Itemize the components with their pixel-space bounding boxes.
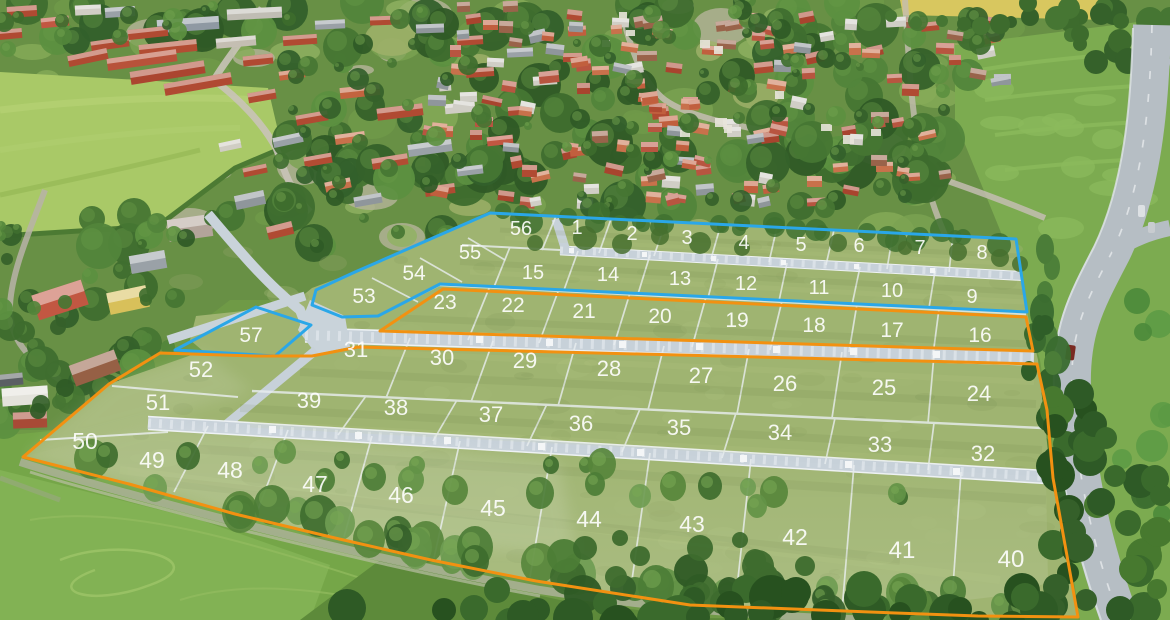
- svg-text:18: 18: [802, 314, 825, 337]
- svg-text:48: 48: [217, 457, 243, 483]
- svg-text:3: 3: [681, 227, 692, 249]
- svg-text:14: 14: [597, 264, 619, 286]
- svg-text:42: 42: [782, 524, 808, 550]
- svg-text:4: 4: [738, 232, 749, 254]
- svg-text:8: 8: [976, 242, 987, 264]
- svg-text:45: 45: [480, 495, 506, 521]
- svg-text:16: 16: [968, 324, 991, 347]
- svg-text:54: 54: [402, 262, 426, 285]
- svg-text:29: 29: [513, 348, 537, 373]
- svg-text:40: 40: [998, 546, 1025, 573]
- svg-text:39: 39: [297, 388, 321, 413]
- svg-text:46: 46: [388, 482, 414, 508]
- svg-text:27: 27: [689, 363, 713, 388]
- svg-text:44: 44: [576, 506, 602, 532]
- svg-text:43: 43: [679, 511, 705, 537]
- svg-text:12: 12: [735, 273, 757, 295]
- svg-text:31: 31: [344, 337, 368, 362]
- svg-text:37: 37: [479, 402, 503, 427]
- svg-text:25: 25: [872, 375, 896, 400]
- svg-text:33: 33: [868, 432, 892, 457]
- svg-text:10: 10: [881, 280, 903, 302]
- svg-text:11: 11: [809, 277, 830, 299]
- svg-text:20: 20: [648, 305, 671, 328]
- svg-text:7: 7: [914, 237, 925, 259]
- svg-text:57: 57: [239, 324, 262, 347]
- svg-text:17: 17: [880, 319, 903, 342]
- svg-text:38: 38: [384, 395, 408, 420]
- svg-text:24: 24: [967, 381, 991, 406]
- svg-text:22: 22: [501, 294, 524, 317]
- svg-text:51: 51: [146, 390, 170, 415]
- svg-text:55: 55: [459, 242, 481, 264]
- svg-text:30: 30: [430, 345, 454, 370]
- svg-text:35: 35: [667, 415, 691, 440]
- svg-text:5: 5: [795, 234, 806, 256]
- svg-text:15: 15: [522, 262, 544, 284]
- svg-text:53: 53: [352, 285, 375, 308]
- svg-text:34: 34: [768, 420, 792, 445]
- svg-text:26: 26: [773, 371, 797, 396]
- svg-text:6: 6: [853, 235, 864, 257]
- svg-text:13: 13: [669, 268, 691, 290]
- svg-text:23: 23: [433, 291, 456, 314]
- svg-text:41: 41: [889, 537, 916, 564]
- svg-text:50: 50: [72, 428, 98, 454]
- svg-text:36: 36: [569, 411, 593, 436]
- svg-text:2: 2: [626, 223, 637, 245]
- svg-text:52: 52: [189, 357, 213, 382]
- svg-text:47: 47: [302, 471, 328, 497]
- svg-text:21: 21: [572, 300, 595, 323]
- svg-text:28: 28: [597, 356, 621, 381]
- svg-text:32: 32: [971, 441, 995, 466]
- svg-text:9: 9: [966, 286, 977, 308]
- svg-text:19: 19: [725, 309, 748, 332]
- svg-text:1: 1: [571, 217, 582, 239]
- svg-text:56: 56: [510, 218, 532, 240]
- svg-text:49: 49: [139, 447, 165, 473]
